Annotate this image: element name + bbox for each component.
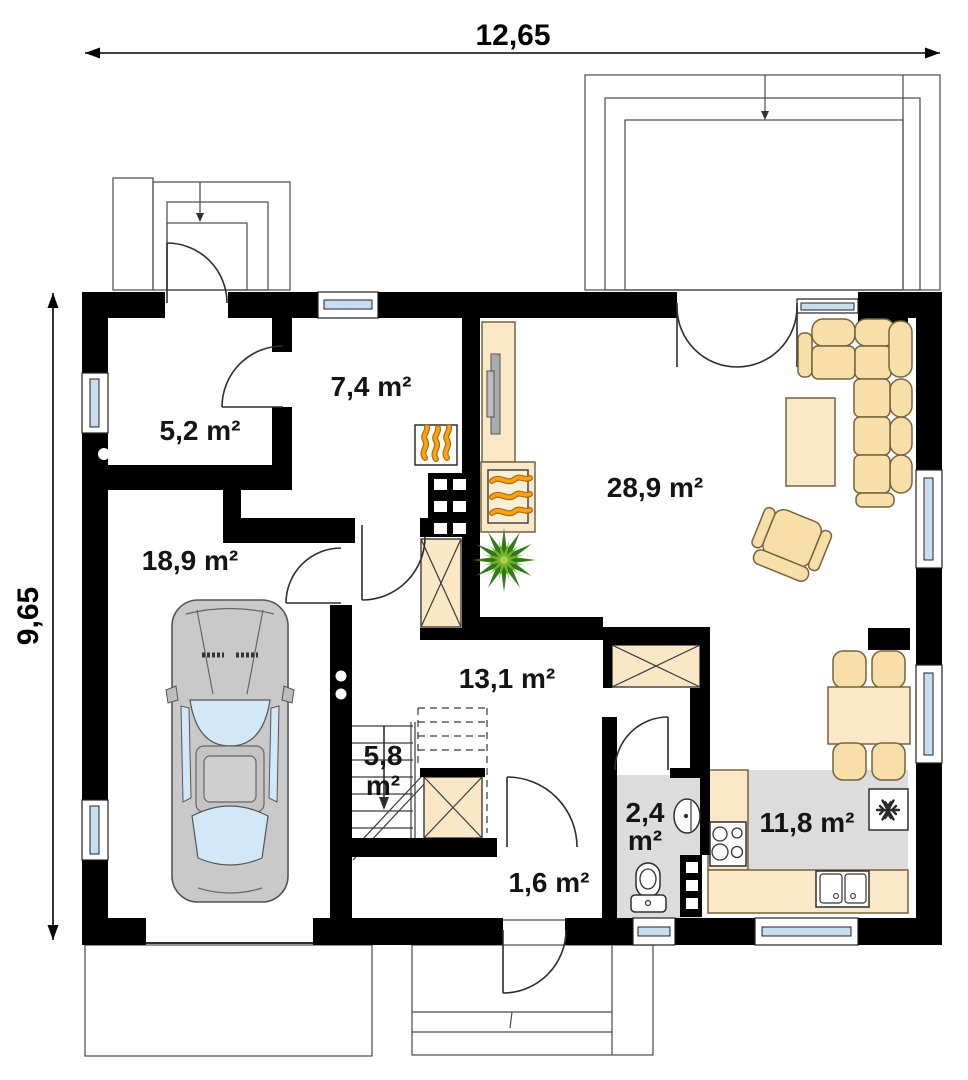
door-vestibule xyxy=(507,777,577,847)
dimension-width: 12,65 xyxy=(85,19,940,59)
kitchen-sink xyxy=(816,871,869,907)
dining-chair xyxy=(872,743,905,780)
dimension-height: 9,65 xyxy=(12,293,59,940)
room-label-stairs-unit: m² xyxy=(366,770,400,801)
window-terrace-fixed xyxy=(797,299,858,313)
window-left-garage xyxy=(82,800,108,860)
window-top-hall xyxy=(318,292,378,318)
top-right-terrace xyxy=(585,75,940,290)
dining-table xyxy=(828,687,910,744)
car-side-window xyxy=(181,706,191,802)
armchair xyxy=(745,502,835,586)
wall-marker-dot xyxy=(98,448,110,460)
driveway xyxy=(85,945,372,1056)
room-label-bathroom-unit: m² xyxy=(628,825,662,856)
floor-plan-page: 12,65 9,65 xyxy=(0,0,968,1080)
room-label-living: 28,9 m² xyxy=(607,472,704,503)
shaft-box-corridor xyxy=(421,539,461,627)
wall-marker-dot xyxy=(336,671,347,682)
shaft-box-stairs xyxy=(424,777,482,838)
dimension-width-label: 12,65 xyxy=(475,19,550,52)
car-mirror xyxy=(282,686,294,703)
door-bathroom xyxy=(615,717,668,770)
window-bottom-kitchen xyxy=(755,918,858,945)
living-fireplace xyxy=(481,462,535,532)
room-label-vestibule: 1,6 m² xyxy=(509,867,590,898)
vent-flue-grid xyxy=(686,862,698,909)
wall-marker-dot xyxy=(336,689,347,700)
car xyxy=(166,600,294,902)
dining-set xyxy=(828,651,910,780)
room-label-stairs: 5,8 xyxy=(364,740,403,771)
coffee-table xyxy=(786,398,835,486)
car-rear-window xyxy=(192,806,268,865)
room-label-garage: 18,9 m² xyxy=(142,545,239,576)
door-garage xyxy=(286,548,341,603)
room-label-hall-upper: 7,4 m² xyxy=(331,371,412,402)
entry-porch-steps xyxy=(412,945,653,1055)
car-side-window xyxy=(269,706,279,802)
room-label-wardrobe: 5,2 m² xyxy=(160,415,241,446)
window-right-dining xyxy=(916,665,942,763)
top-left-porch xyxy=(113,178,290,290)
dimension-height-label: 9,65 xyxy=(12,587,45,645)
dining-chair xyxy=(833,743,866,780)
roof-slope-arrow xyxy=(196,213,204,222)
room-label-bathroom: 2,4 xyxy=(626,797,665,828)
tv-cabinet xyxy=(482,322,515,462)
dining-chair xyxy=(833,651,866,688)
door-main-entry-bottom xyxy=(503,920,566,993)
window-right-living xyxy=(916,470,942,568)
washbasin xyxy=(674,799,700,833)
door-wardrobe xyxy=(222,346,283,407)
room-label-kitchen: 11,8 m² xyxy=(760,807,855,838)
roof-slope-arrow xyxy=(761,111,769,120)
window-bottom-bathroom xyxy=(633,918,675,945)
door-hall-corridor xyxy=(362,525,425,600)
door-front-entrance-top xyxy=(167,243,227,303)
plant-icon xyxy=(472,528,536,592)
floor-plan-svg: 12,65 9,65 xyxy=(0,0,968,1080)
door-living-double xyxy=(677,303,797,367)
car-mirror xyxy=(166,686,178,703)
fireplace-icon xyxy=(415,425,457,465)
fridge xyxy=(869,789,908,830)
kitchen-counter-bottom xyxy=(708,870,908,913)
stove-hob xyxy=(710,822,746,866)
builtin-cabinet-hall xyxy=(612,645,700,687)
room-label-hall-lower: 13,1 m² xyxy=(459,663,556,694)
dining-chair xyxy=(872,651,905,688)
window-left-wardrobe xyxy=(82,373,108,433)
